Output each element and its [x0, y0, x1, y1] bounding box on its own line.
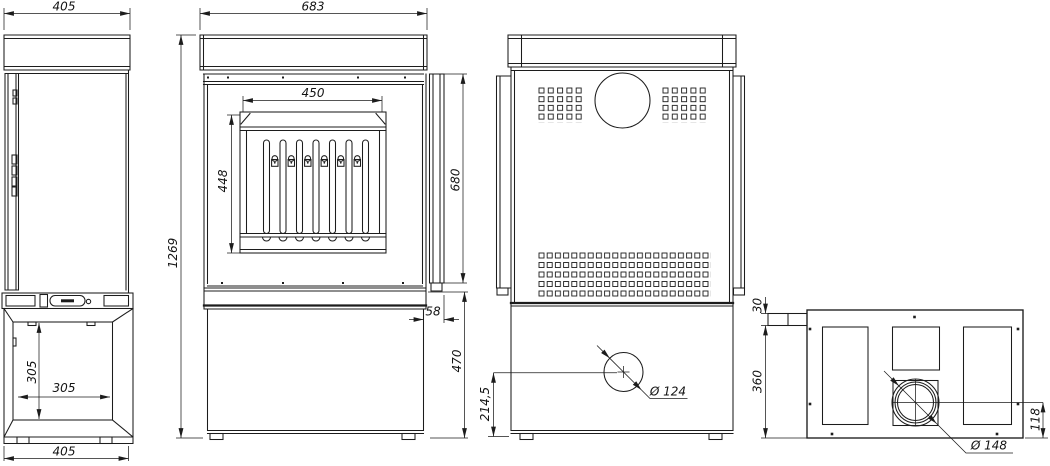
grate-bars — [263, 140, 370, 241]
dim-total-height: 1269 — [166, 238, 180, 269]
dim-shield-offset: 58 — [425, 305, 441, 319]
dim-shield-height: 680 — [449, 168, 463, 191]
vent-panel-right — [964, 327, 1012, 425]
top-view: 30 360 118 Ø 148 — [751, 297, 1049, 453]
top-outline — [807, 310, 1023, 438]
screw-dots — [809, 316, 1020, 436]
foot — [100, 437, 112, 444]
foot — [402, 434, 415, 440]
side-dimensions: 405 305 305 405 — [4, 0, 130, 461]
dim-handle-depth: 30 — [751, 298, 765, 314]
side-top-band — [4, 35, 130, 70]
foot — [17, 437, 29, 444]
dim-glass-height: 448 — [216, 169, 230, 192]
dim-opening-height: 305 — [25, 361, 39, 384]
back-base — [511, 353, 733, 440]
side-view: 405 305 305 405 — [2, 0, 133, 461]
side-door — [5, 70, 129, 293]
dim-opening-width: 305 — [53, 381, 76, 395]
back-top-band — [508, 35, 736, 67]
back-dimensions: Ø 124 214,5 — [478, 346, 688, 437]
lock-icon — [272, 156, 278, 167]
lock-icon — [321, 156, 327, 167]
perforation-grid-right — [663, 88, 710, 123]
dim-side-top-width: 405 — [53, 0, 76, 14]
back-shield-left — [497, 76, 512, 295]
dim-side-bottom-width: 405 — [53, 445, 76, 459]
dim-rear-flue-diameter: Ø 124 — [649, 385, 686, 399]
side-base — [4, 309, 133, 444]
perforation-grid-wide — [539, 253, 711, 301]
front-body — [204, 74, 426, 309]
back-body — [511, 67, 733, 431]
latch-knob — [86, 299, 90, 303]
front-base — [208, 309, 424, 440]
lock-icon — [338, 156, 344, 167]
drawing-canvas: 405 305 305 405 — [0, 0, 1050, 466]
dim-glass-width: 450 — [302, 86, 325, 100]
vent-panel-middle — [893, 327, 940, 370]
foot — [520, 434, 533, 440]
front-top-band — [200, 35, 427, 85]
dim-top-flue-diameter: Ø 148 — [970, 439, 1008, 453]
dim-base-height: 470 — [450, 349, 464, 372]
side-handle-band — [2, 293, 133, 309]
front-view: 683 1269 450 448 680 58 470 — [166, 0, 468, 440]
flue-collar — [892, 379, 1043, 427]
stove-technical-drawing: 405 305 305 405 — [0, 0, 1050, 466]
back-shield-right — [733, 76, 745, 295]
firebox — [240, 112, 386, 253]
handle-tab — [768, 314, 807, 326]
lock-icon — [354, 156, 360, 167]
top-dimensions: 30 360 118 Ø 148 — [751, 297, 1049, 453]
lock-icons — [272, 156, 361, 167]
lock-icon — [305, 156, 311, 167]
lock-icon — [288, 156, 294, 167]
top-flue-opening — [595, 73, 650, 128]
dim-rear-flue-height: 214,5 — [478, 387, 492, 421]
vent-panels — [823, 327, 1012, 425]
foot — [709, 434, 722, 440]
dim-flue-offset: 118 — [1029, 408, 1043, 431]
side-heat-shield — [430, 74, 445, 291]
perforation-grid-left — [539, 88, 586, 123]
foot — [210, 434, 223, 440]
back-view: Ø 124 214,5 — [478, 35, 745, 440]
dim-body-depth: 360 — [751, 370, 765, 393]
vent-panel-left — [823, 327, 869, 425]
dim-front-width: 683 — [302, 0, 325, 14]
